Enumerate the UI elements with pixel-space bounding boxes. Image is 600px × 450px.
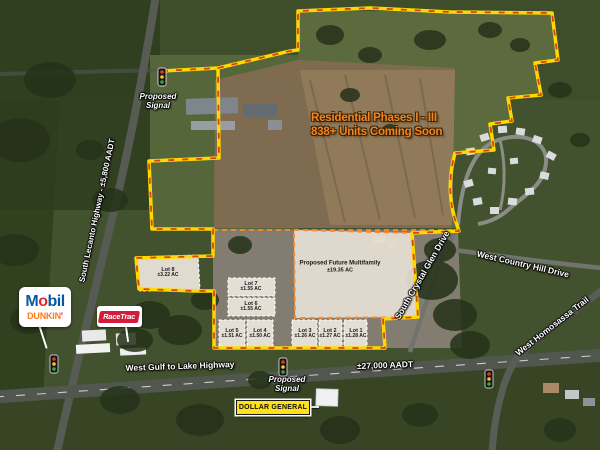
lot-2-label: Lot 2 ±1.27 AC bbox=[320, 328, 341, 340]
traffic-signal-icon-bottom-left bbox=[50, 355, 58, 373]
aerial-site-map: Residential Phases I - III 838+ Units Co… bbox=[0, 0, 600, 450]
racetrac-callout: RaceTrac bbox=[97, 306, 142, 327]
residential-phases-line1: Residential Phases I - III bbox=[311, 112, 442, 126]
dollar-general-callout: DOLLAR GENERAL bbox=[236, 400, 310, 415]
residential-phases-line2: 838+ Units Coming Soon bbox=[311, 126, 442, 140]
proposed-signal-label-bottom: Proposed Signal bbox=[263, 375, 311, 393]
traffic-signal-icon-top bbox=[158, 68, 166, 86]
dunkin-logo: DUNKIN' bbox=[27, 312, 63, 321]
racetrac-logo: RaceTrac bbox=[98, 311, 140, 323]
proposed-signal-label-top: Proposed Signal bbox=[134, 92, 182, 110]
lot-1-label: Lot 1 ±1.28 AC bbox=[346, 328, 367, 340]
lot-5-label: Lot 5 ±1.51 AC bbox=[222, 328, 243, 340]
traffic-signal-icon-bottom-center bbox=[279, 358, 287, 376]
mobil-logo: Mobil bbox=[25, 294, 64, 310]
dollar-general-callout-line bbox=[309, 406, 319, 408]
lot-7-label: Lot 7 ±1.55 AC bbox=[241, 281, 262, 293]
lot-4-label: Lot 4 ±1.50 AC bbox=[250, 328, 271, 340]
residential-phases-note: Residential Phases I - III 838+ Units Co… bbox=[311, 112, 442, 140]
traffic-signal-icon-bottom-right bbox=[485, 370, 493, 388]
mobil-dunkin-callout: Mobil DUNKIN' bbox=[19, 287, 71, 327]
multifamily-label: Proposed Future Multifamily ±19.35 AC bbox=[299, 260, 380, 273]
lot-6-label: Lot 6 ±1.55 AC bbox=[241, 301, 262, 313]
lot-3-label: Lot 3 ±1.26 AC bbox=[295, 328, 316, 340]
lot-8-label: Lot 8 ±3.22 AC bbox=[158, 267, 179, 279]
dollar-general-building bbox=[316, 389, 339, 407]
dollar-general-logo: DOLLAR GENERAL bbox=[239, 404, 307, 411]
